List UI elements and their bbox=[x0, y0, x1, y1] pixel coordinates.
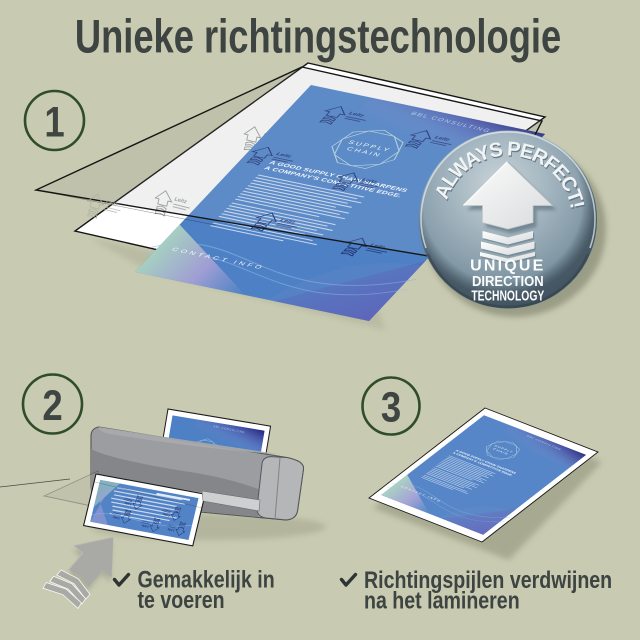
svg-text:3: 3 bbox=[381, 384, 401, 431]
svg-text:1: 1 bbox=[44, 99, 64, 146]
svg-text:TECHNOLOGY: TECHNOLOGY bbox=[471, 287, 544, 304]
svg-text:2: 2 bbox=[42, 382, 62, 429]
svg-text:te voeren: te voeren bbox=[138, 586, 225, 614]
svg-text:Unieke richtingstechnologie: Unieke richtingstechnologie bbox=[75, 10, 561, 63]
svg-text:UNIQUE: UNIQUE bbox=[470, 258, 545, 275]
svg-text:na het lamineren: na het lamineren bbox=[364, 586, 520, 614]
